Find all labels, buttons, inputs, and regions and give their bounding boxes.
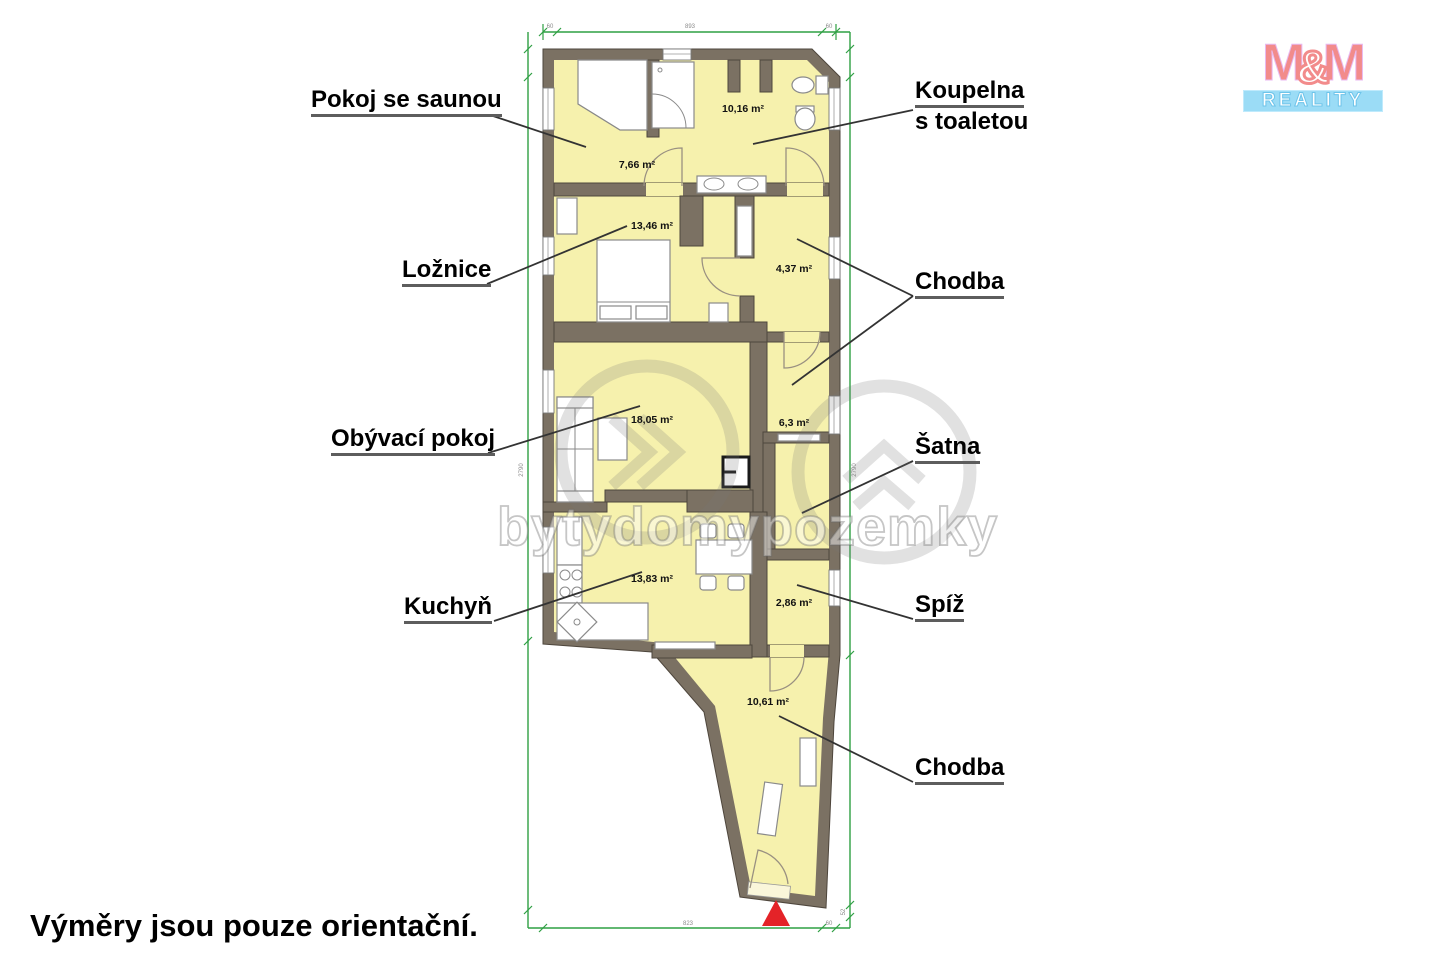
room-area: 13,46 m² <box>631 220 674 232</box>
label-satna: Šatna <box>915 433 980 464</box>
wall-segment <box>728 60 740 92</box>
wall-segment <box>680 196 703 246</box>
chair <box>700 576 716 590</box>
chair <box>728 576 744 590</box>
pillow <box>636 306 667 319</box>
dimension-value: 60 <box>826 24 833 30</box>
dimension-value: 60 <box>826 921 833 927</box>
label-koupelna-s-toaletou: Koupelna s toaletou <box>915 77 1028 135</box>
label-loznice: Ložnice <box>402 256 491 287</box>
dimension-value: 52 <box>841 908 847 915</box>
door-gap <box>787 183 823 196</box>
dimension-value: 2790 <box>519 463 525 477</box>
room-area: 10,61 m² <box>747 696 790 708</box>
room-area: 6,3 m² <box>779 417 810 429</box>
floorplan-drawing: 60 893 60 2790 2790 52 823 60 bytydomypo… <box>0 0 1440 960</box>
cabinet <box>709 303 728 322</box>
logo-ampersand: & <box>1296 44 1329 90</box>
dimension-value: 893 <box>685 24 696 30</box>
label-spiz: Spíž <box>915 591 964 622</box>
room-area: 4,37 m² <box>776 263 813 275</box>
floorplan-page: 60 893 60 2790 2790 52 823 60 bytydomypo… <box>0 0 1440 960</box>
label-text: Chodba <box>915 268 1004 299</box>
window <box>543 88 554 130</box>
room-area: 2,86 m² <box>776 597 813 609</box>
window <box>663 49 691 60</box>
label-chodba-dolni: Chodba <box>915 754 1004 785</box>
label-text: Chodba <box>915 754 1004 785</box>
room-area: 18,05 m² <box>631 414 674 426</box>
hall-closet <box>800 738 816 786</box>
mm-reality-logo: M & M REALITY <box>1243 38 1383 112</box>
label-text: s toaletou <box>915 108 1028 135</box>
closet <box>737 206 752 256</box>
label-kuchyn: Kuchyň <box>404 593 492 624</box>
room-area: 7,66 m² <box>619 159 656 171</box>
door-gap <box>646 183 683 196</box>
label-obyvaci-pokoj: Obývací pokoj <box>331 425 495 456</box>
room-area: 13,83 m² <box>631 573 674 585</box>
entrance-arrow <box>762 900 790 926</box>
door-gap <box>770 645 804 657</box>
label-text: Ložnice <box>402 256 491 287</box>
label-text: Šatna <box>915 433 980 464</box>
label-text: Pokoj se saunou <box>311 86 502 117</box>
wall-segment <box>760 60 772 92</box>
label-chodba-horni: Chodba <box>915 268 1004 299</box>
window <box>543 370 554 413</box>
dimension-value: 823 <box>683 921 694 927</box>
window <box>829 88 840 130</box>
threshold <box>655 642 715 649</box>
dimension-value: 60 <box>547 24 554 30</box>
label-text: Obývací pokoj <box>331 425 495 456</box>
room-area: 10,16 m² <box>722 103 765 115</box>
door-gap <box>784 332 820 342</box>
pillow <box>600 306 631 319</box>
label-text: Koupelna <box>915 77 1024 108</box>
label-text: Spíž <box>915 591 964 622</box>
watermark-text: bytydomypozemky <box>497 497 998 557</box>
wardrobe <box>557 198 577 234</box>
logo-mm: M & M <box>1243 38 1383 88</box>
sink-counter <box>697 176 766 193</box>
footnote-disclaimer: Výměry jsou pouze orientační. <box>30 908 478 944</box>
logo-reality-bar: REALITY <box>1243 90 1383 112</box>
toilet <box>816 76 828 94</box>
wall-segment <box>554 322 767 342</box>
window <box>829 570 840 606</box>
label-pokoj-se-saunou: Pokoj se saunou <box>311 86 502 117</box>
label-text: Kuchyň <box>404 593 492 624</box>
